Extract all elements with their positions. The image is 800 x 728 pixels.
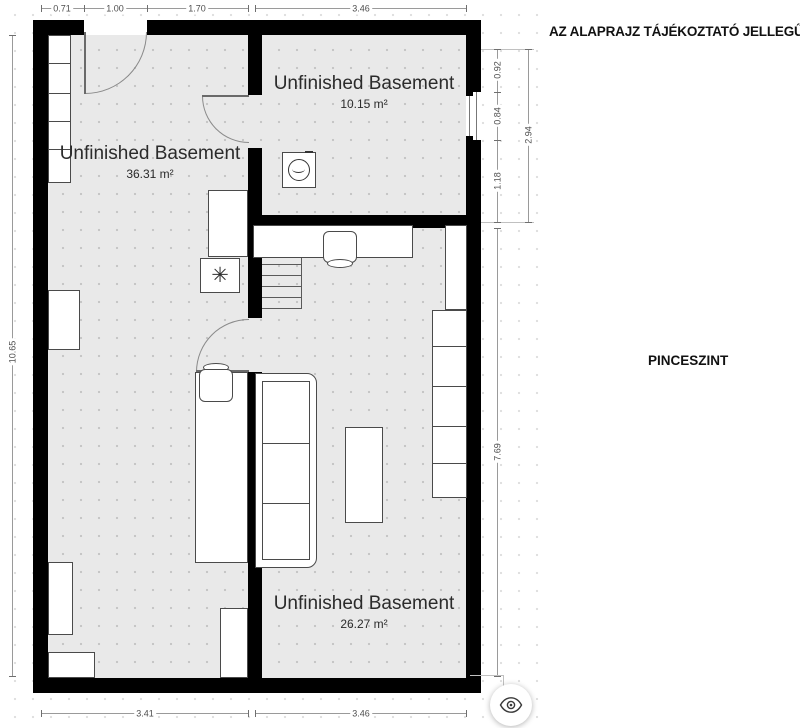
dim-left-1: 10.65 (8, 339, 19, 366)
window-frame-line-2 (476, 92, 477, 140)
shelf-right-wall[interactable] (432, 310, 467, 498)
dim-tick (494, 140, 501, 141)
dim-right-4: 2.94 (524, 124, 535, 146)
washer-wave-icon (292, 165, 305, 173)
dim-tick (494, 228, 501, 229)
dim-tick (525, 222, 532, 223)
room-label-bottom-right: Unfinished Basement 26.27 m² (262, 593, 466, 631)
washing-machine[interactable] (282, 152, 316, 188)
stair-tread (262, 286, 301, 287)
info-panel: AZ ALAPRAJZ TÁJÉKOZTATÓ JELLEGŰ! PINCESZ… (540, 0, 800, 728)
dim-top-1: 0.71 (51, 4, 73, 15)
counter-right-wall[interactable] (445, 225, 467, 310)
shelf-divider (433, 386, 466, 387)
shelf-divider (49, 121, 70, 122)
window-jamb-top (466, 92, 473, 96)
window-frame-line-1 (469, 92, 470, 140)
cabinet-bottom-left[interactable] (48, 652, 95, 678)
cushion-divider (263, 443, 309, 444)
dim-top-4: 3.46 (350, 4, 372, 15)
wall-bottom (33, 678, 481, 693)
room-area: 36.31 m² (50, 167, 250, 181)
stair-tread (262, 297, 301, 298)
dim-tick (9, 676, 16, 677)
room-name: Unfinished Basement (262, 73, 466, 94)
wall-left (33, 20, 48, 693)
dim-tick (525, 49, 532, 50)
floorplan-viewer: ✳ (0, 0, 800, 728)
stair-tread (262, 308, 301, 309)
dim-right-3: 1.18 (493, 170, 504, 192)
cabinet-left-mid[interactable] (48, 290, 80, 350)
dim-tick (147, 5, 148, 12)
room-label-top-right: Unfinished Basement 10.15 m² (262, 73, 466, 111)
room-name: Unfinished Basement (262, 593, 466, 614)
washer-door-hinge (305, 151, 313, 153)
coffee-table[interactable] (345, 427, 383, 523)
dim-right-1: 0.92 (493, 59, 504, 81)
dim-tick (466, 710, 467, 717)
dim-tick (255, 710, 256, 717)
dim-tick (84, 5, 85, 12)
room-area: 26.27 m² (262, 617, 466, 631)
disclaimer-text: AZ ALAPRAJZ TÁJÉKOZTATÓ JELLEGŰ! (549, 24, 797, 39)
wall-interior-vertical-upper-b (248, 148, 262, 222)
dim-tick (9, 35, 16, 36)
room-area: 10.15 m² (262, 97, 466, 111)
dim-tick (494, 49, 501, 50)
dim-extension (470, 675, 504, 676)
shelf-divider (433, 426, 466, 427)
dim-right-2: 0.84 (493, 105, 504, 127)
shelf-divider (433, 463, 466, 464)
dim-top-3: 1.70 (186, 4, 208, 15)
dim-right-5: 7.69 (493, 441, 504, 463)
sofa-cushions (262, 381, 310, 560)
entry-door-leaf[interactable] (84, 32, 86, 94)
dim-tick (248, 5, 249, 12)
plan-canvas: ✳ (0, 0, 540, 728)
dim-tick (248, 710, 249, 717)
furnace-unit[interactable]: ✳ (200, 258, 240, 293)
eye-icon (499, 693, 523, 717)
chair-left-room[interactable] (199, 369, 233, 402)
dim-top-2: 1.00 (104, 4, 126, 15)
floor-name-label: PINCESZINT (648, 353, 728, 368)
chair-bottom-backrest (327, 259, 353, 268)
dim-bottom-2: 3.46 (350, 709, 372, 720)
room-name: Unfinished Basement (50, 143, 250, 164)
visibility-toggle-button[interactable] (490, 684, 532, 726)
dim-tick (41, 710, 42, 717)
washer-drum-icon (288, 159, 310, 181)
furnace-icon: ✳ (201, 263, 239, 289)
dim-tick (466, 5, 467, 12)
dim-tick (255, 5, 256, 12)
stair-tread (262, 275, 301, 276)
staircase[interactable] (262, 253, 302, 309)
wall-interior-vertical-upper-a (248, 35, 262, 95)
window-jamb-bottom (466, 136, 473, 140)
shelf-divider (49, 93, 70, 94)
cabinet-bottom-mid[interactable] (220, 608, 248, 678)
dim-tick (41, 5, 42, 12)
cabinet-left-lower[interactable] (48, 562, 73, 635)
dim-tick (494, 92, 501, 93)
sofa[interactable] (255, 373, 317, 568)
dim-bottom-1: 3.41 (134, 709, 156, 720)
room-label-left: Unfinished Basement 36.31 m² (50, 143, 250, 181)
cushion-divider (263, 503, 309, 504)
counter-mid-left[interactable] (208, 190, 248, 257)
interior-door-upper-leaf[interactable] (202, 95, 249, 97)
shelf-divider (49, 63, 70, 64)
stair-tread (262, 264, 301, 265)
dim-tick (494, 676, 501, 677)
dim-tick (494, 222, 501, 223)
shelf-divider (433, 346, 466, 347)
